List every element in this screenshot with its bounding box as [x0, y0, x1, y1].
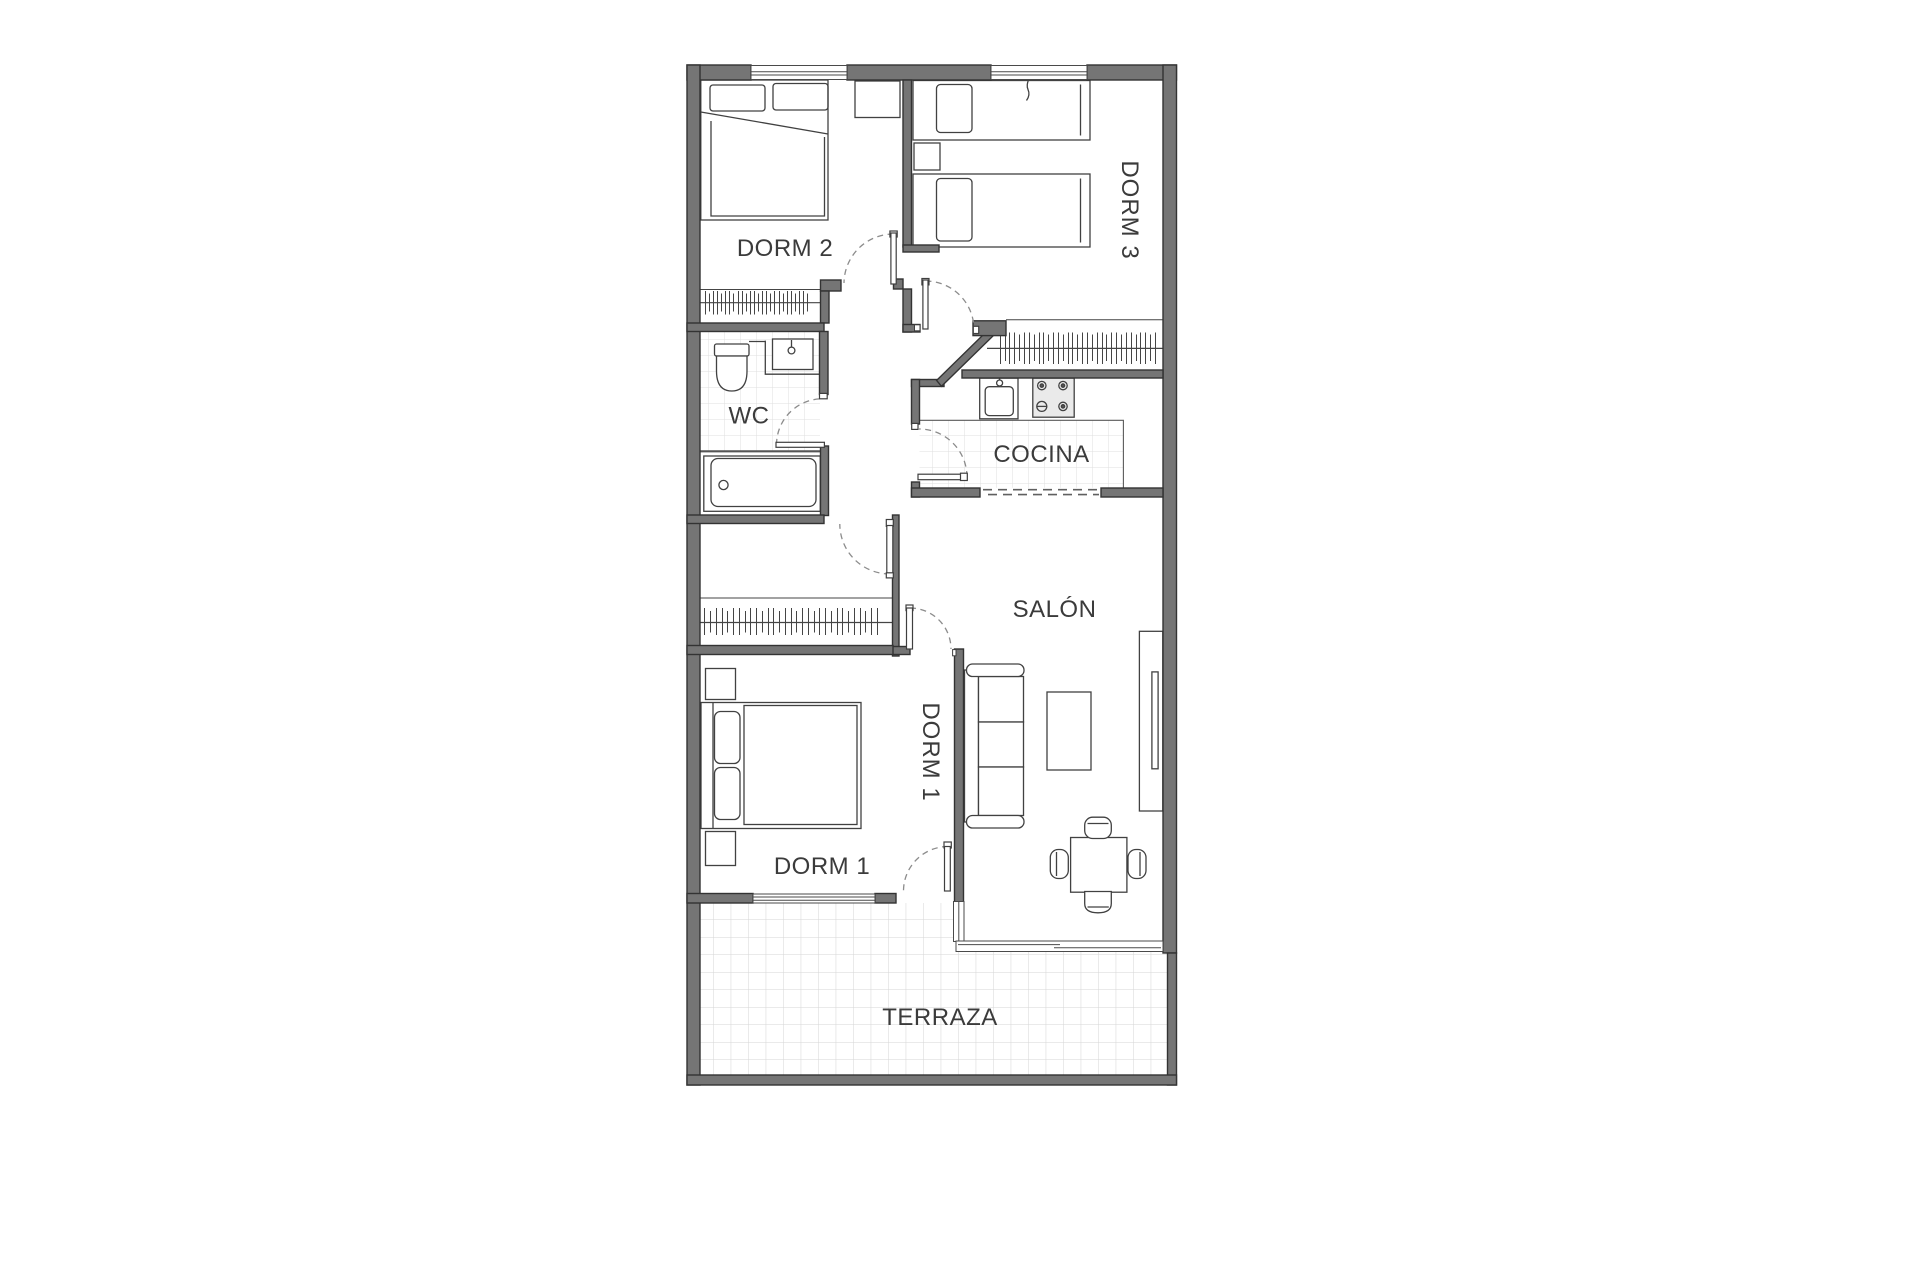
svg-text:SALÓN: SALÓN	[1013, 596, 1097, 623]
svg-text:WC: WC	[729, 403, 770, 430]
svg-text:TERRAZA: TERRAZA	[882, 1004, 998, 1031]
svg-text:COCINA: COCINA	[993, 441, 1089, 468]
svg-text:DORM 3: DORM 3	[1116, 160, 1143, 259]
svg-text:DORM 2: DORM 2	[737, 235, 833, 262]
svg-text:DORM 1: DORM 1	[774, 853, 870, 880]
svg-text:DORM 1: DORM 1	[917, 702, 944, 801]
